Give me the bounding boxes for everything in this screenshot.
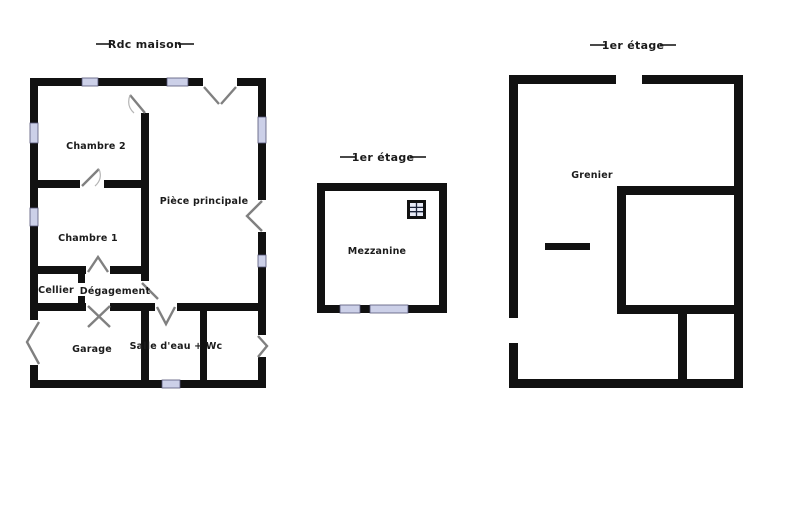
rdc-door-right-bottom-icon <box>258 336 267 357</box>
rdc-door-garage-inner-icon <box>88 306 110 327</box>
rdc-window-left-2-icon <box>30 208 38 226</box>
room-label-garage: Garage <box>72 344 112 355</box>
rdc-window-right-2-icon <box>258 255 266 267</box>
room-label-degagement: Dégagement <box>80 286 151 297</box>
plan-title-mezzanine: 1er étage <box>352 151 415 164</box>
floorplan-canvas: Rdc maison Chambre 2 Pièce principale Ch… <box>0 0 791 527</box>
room-label-chambre2: Chambre 2 <box>66 141 126 152</box>
rdc-window-right-1-icon <box>258 117 266 143</box>
floorplan-page: Rdc maison Chambre 2 Pièce principale Ch… <box>0 0 791 527</box>
plan-title-rdc: Rdc maison <box>108 38 182 51</box>
mezzanine-window-1-icon <box>340 305 360 313</box>
rdc-door-chambre2-icon <box>130 95 145 113</box>
room-label-piece-principale: Pièce principale <box>160 196 249 207</box>
room-label-cellier: Cellier <box>38 285 74 296</box>
rdc-window-top-2-icon <box>167 78 188 86</box>
rdc-window-top-1-icon <box>82 78 98 86</box>
rdc-double-door-top-icon <box>204 87 236 104</box>
room-label-chambre1: Chambre 1 <box>58 233 118 244</box>
plan-mezzanine: 1er étage Mezzanine <box>317 151 447 313</box>
grenier-walls <box>509 75 743 388</box>
rdc-window-left-1-icon <box>30 123 38 143</box>
room-label-grenier: Grenier <box>571 170 613 181</box>
rdc-window-bottom-icon <box>162 380 180 388</box>
rdc-door-salledeau-icon <box>157 307 175 324</box>
rdc-double-door-right-icon <box>247 201 262 231</box>
room-label-salledeau: Salle d'eau + Wc <box>130 341 223 352</box>
rdc-garage-door-left-icon <box>27 322 39 364</box>
room-label-mezzanine: Mezzanine <box>348 246 406 257</box>
mezzanine-window-2-icon <box>370 305 408 313</box>
plan-grenier: 1er étage Grenier <box>509 39 743 388</box>
plan-rdc-maison: Rdc maison Chambre 2 Pièce principale Ch… <box>27 38 267 388</box>
rdc-door-degagement-icon <box>88 257 108 272</box>
rdc-door-chambre1-icon <box>82 169 99 186</box>
plan-title-grenier: 1er étage <box>602 39 665 52</box>
skylight-window-icon <box>407 200 426 219</box>
